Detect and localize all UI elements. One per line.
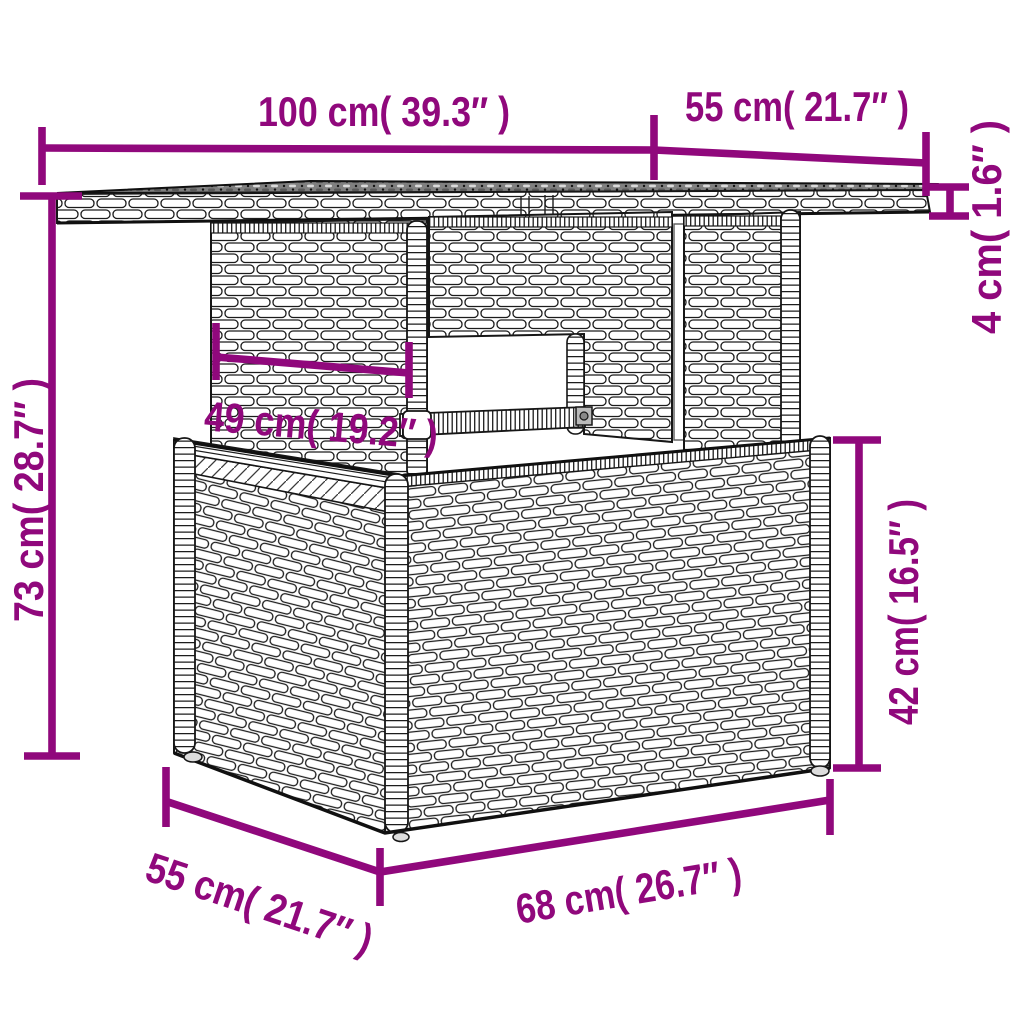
svg-text:55 cm( 21.7″ ): 55 cm( 21.7″ )	[685, 83, 909, 130]
svg-text:4 cm( 1.6″ ): 4 cm( 1.6″ )	[963, 120, 1010, 334]
svg-text:42 cm( 16.5″ ): 42 cm( 16.5″ )	[880, 499, 927, 725]
svg-text:73 cm( 28.7″ ): 73 cm( 28.7″ )	[5, 378, 52, 622]
svg-text:100 cm( 39.3″ ): 100 cm( 39.3″ )	[258, 88, 510, 135]
